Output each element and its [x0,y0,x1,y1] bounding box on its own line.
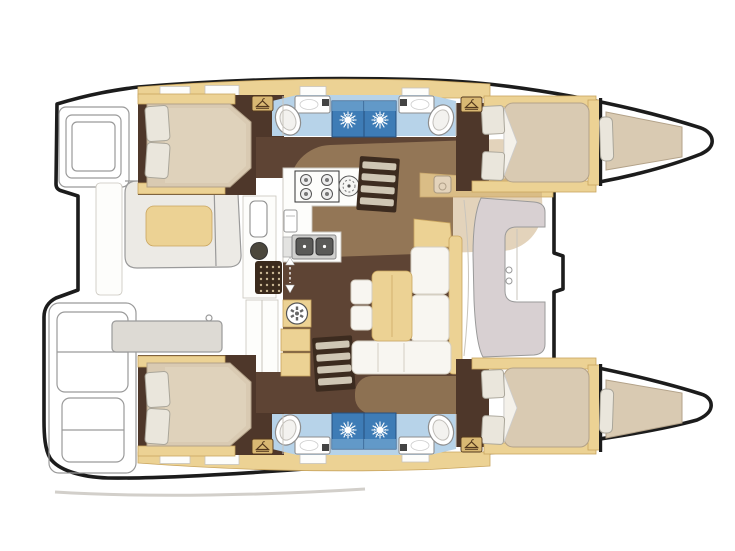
oven-icon [284,210,297,232]
catamaran-floorplan [0,0,735,551]
wetbar-round-icon [251,243,268,260]
floorplan-page [0,0,735,551]
stove-burners-icon [295,171,339,202]
salon-stool [351,306,372,330]
cockpit-side-panel [96,183,122,295]
stairs-to-port-hull [356,156,400,213]
stairs-to-starboard-hull [312,335,356,392]
double-sink-icon [283,235,336,259]
galley-cabinet [281,329,310,351]
wetbar-sink-icon [250,201,267,237]
salon-stool [351,280,372,304]
round-hob-icon [339,176,359,196]
hull-shadow-line [55,489,365,495]
cockpit-table [112,315,222,352]
floor-grating-icon [255,261,282,294]
galley-cabinet [281,353,310,376]
washing-machine-icon [283,300,311,327]
cockpit-cushion [146,206,212,246]
